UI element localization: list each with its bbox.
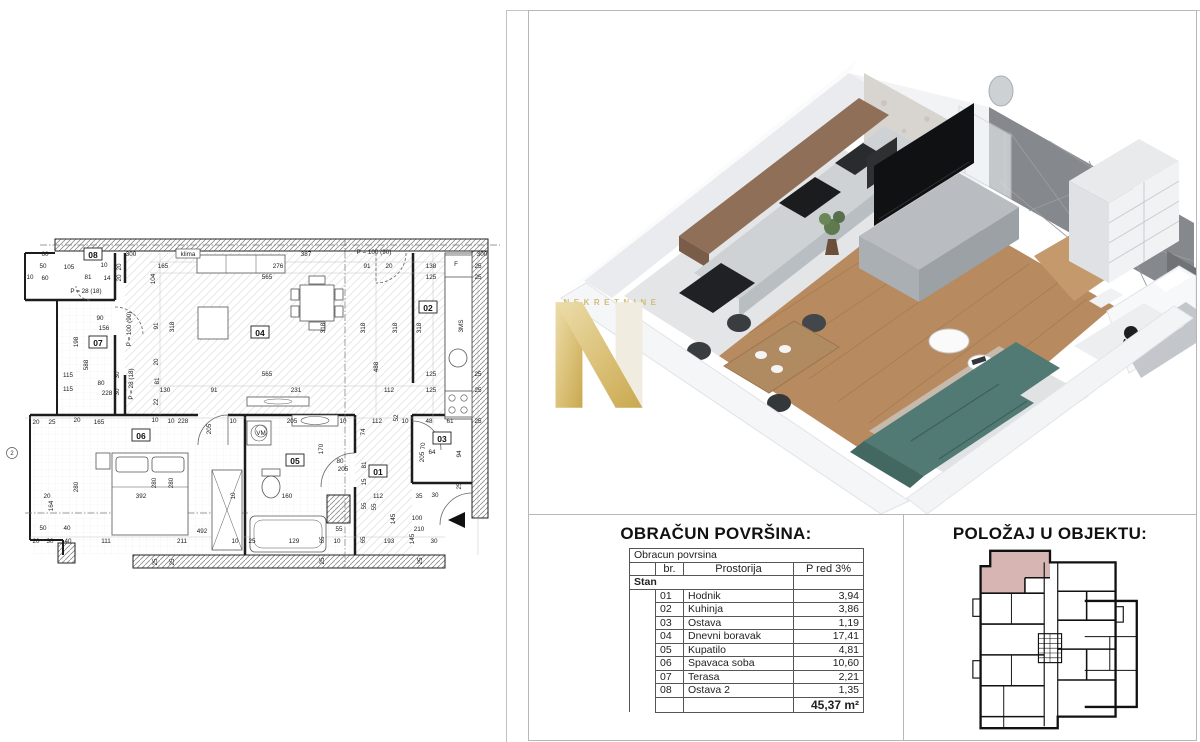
svg-text:14: 14 [103,275,111,282]
svg-text:104: 104 [150,273,157,284]
svg-text:25: 25 [48,419,56,426]
svg-text:64: 64 [428,449,436,456]
building-position-plan [950,545,1150,733]
svg-text:205: 205 [338,466,349,473]
svg-text:125: 125 [426,274,437,281]
table-row: 08Ostava 21,35 [630,684,864,698]
svg-text:08: 08 [88,250,98,260]
kitchen-fixtures [445,253,472,419]
svg-text:30: 30 [431,492,439,499]
svg-text:25: 25 [152,558,159,566]
svg-text:100: 100 [412,515,423,522]
svg-text:10: 10 [229,418,237,425]
svg-text:318: 318 [416,322,423,333]
floorplan-2d-drawing: 2 [0,225,505,585]
svg-text:10: 10 [151,417,159,424]
svg-text:70: 70 [420,442,427,450]
svg-text:25: 25 [474,387,482,394]
svg-text:74: 74 [360,428,367,436]
svg-text:04: 04 [255,328,265,338]
svg-text:25: 25 [417,557,424,565]
svg-text:20: 20 [43,493,51,500]
svg-text:P = 28 (18): P = 28 (18) [70,288,101,295]
svg-text:318: 318 [360,322,367,333]
svg-text:40: 40 [64,538,72,545]
round-mirror [989,76,1013,106]
svg-text:112: 112 [384,387,395,394]
svg-text:30: 30 [46,538,54,545]
svg-text:193: 193 [384,538,395,545]
agency-logo-n [547,296,651,414]
svg-text:90: 90 [96,315,104,322]
position-section: POLOŽAJ U OBJEKTU: [903,515,1196,740]
svg-text:318: 318 [169,321,176,332]
table-row: 07Terasa2,21 [630,670,864,684]
svg-text:52: 52 [393,414,400,422]
svg-text:565: 565 [262,274,273,281]
svg-text:55: 55 [371,503,378,511]
svg-text:20: 20 [385,263,393,270]
svg-text:228: 228 [102,390,113,397]
panel-divider-line [506,10,507,742]
area-table-title: OBRAČUN POVRŠINA: [529,524,903,544]
svg-text:06: 06 [136,431,146,441]
svg-text:55: 55 [335,526,343,533]
area-table: Obracun povrsina br. Prostorija P red 3%… [629,548,864,713]
svg-text:10: 10 [167,418,175,425]
entrance-arrow [448,512,465,528]
svg-text:115: 115 [63,372,74,379]
render-3d-view: NEKRETNINE [529,11,1196,514]
table-row: 04Dnevni boravak17,41 [630,630,864,644]
svg-text:81: 81 [361,461,368,469]
svg-text:488: 488 [373,361,380,372]
svg-text:318: 318 [392,322,399,333]
svg-text:10: 10 [230,492,237,500]
svg-text:138: 138 [426,263,437,270]
svg-text:30: 30 [430,538,438,545]
table-row: 01Hodnik3,94 [630,589,864,603]
svg-text:10: 10 [100,262,108,269]
svg-text:60: 60 [41,275,49,282]
col-area: P red 3% [794,562,864,576]
svg-text:387: 387 [301,251,312,258]
svg-text:07: 07 [93,338,103,348]
agency-watermark: NEKRETNINE [547,296,677,307]
svg-text:91: 91 [153,322,160,330]
svg-text:48: 48 [425,418,433,425]
svg-text:300: 300 [477,251,488,258]
svg-text:20: 20 [153,358,160,366]
svg-text:165: 165 [94,419,105,426]
svg-text:05: 05 [290,456,300,466]
svg-text:129: 129 [289,538,300,545]
svg-text:50: 50 [39,525,47,532]
svg-text:61: 61 [446,418,454,425]
render-3d-illustration [529,11,1196,514]
svg-text:81: 81 [154,377,161,385]
svg-text:165: 165 [158,263,169,270]
svg-text:10: 10 [26,274,34,281]
svg-text:170: 170 [318,443,325,454]
svg-text:3MS: 3MS [458,320,465,333]
svg-text:40: 40 [63,525,71,532]
svg-text:65: 65 [360,536,367,544]
svg-text:111: 111 [101,538,111,545]
svg-text:115: 115 [63,386,74,393]
svg-text:280: 280 [151,477,158,488]
svg-text:55: 55 [361,502,368,510]
table-row: 06Spavaca soba10,60 [630,657,864,671]
svg-text:10: 10 [339,418,347,425]
svg-text:VM: VM [256,430,265,437]
svg-text:280: 280 [73,481,80,492]
svg-text:F: F [454,261,458,268]
svg-text:35: 35 [415,493,423,500]
svg-text:492: 492 [197,528,208,535]
svg-text:25: 25 [319,557,326,565]
table-row: 02Kuhinja3,86 [630,603,864,617]
svg-text:03: 03 [437,434,447,444]
svg-text:231: 231 [291,387,302,394]
svg-text:2: 2 [10,451,14,457]
svg-text:210: 210 [414,526,425,533]
svg-text:50: 50 [39,263,47,270]
col-br: br. [656,562,684,576]
svg-text:01: 01 [373,467,383,477]
position-title: POLOŽAJ U OBJEKTU: [904,524,1196,544]
svg-text:228: 228 [178,418,189,425]
svg-text:94: 94 [456,450,463,458]
svg-text:145: 145 [409,533,416,544]
svg-text:276: 276 [273,263,284,270]
svg-text:20: 20 [73,417,81,424]
svg-text:20: 20 [116,263,123,271]
svg-text:25: 25 [474,418,482,425]
area-table-subtitle: Obracun povrsina [630,549,864,563]
svg-text:25: 25 [456,482,463,490]
svg-text:81: 81 [84,274,92,281]
svg-text:30: 30 [114,371,121,379]
svg-text:164: 164 [48,500,55,511]
svg-text:125: 125 [426,387,437,394]
svg-text:20: 20 [32,538,40,545]
group-label: Stan [630,576,794,590]
total-area: 45,37 m² [794,697,864,712]
svg-text:80: 80 [336,458,344,465]
svg-text:318: 318 [320,322,327,333]
svg-text:205: 205 [419,451,426,462]
svg-text:65: 65 [319,536,326,544]
svg-text:P = 100 (90): P = 100 (90) [357,249,392,256]
area-table-rows: 01Hodnik3,9402Kuhinja3,8603Ostava1,1904D… [630,589,864,697]
area-table-section: OBRAČUN POVRŠINA: Obracun povrsina br. P… [529,515,903,740]
svg-text:25: 25 [474,371,482,378]
table-row: 05Kupatilo4,81 [630,643,864,657]
svg-text:25: 25 [248,538,256,545]
svg-text:160: 160 [282,493,293,500]
svg-text:P = 100 (90): P = 100 (90) [126,312,133,347]
svg-text:02: 02 [423,303,433,313]
svg-text:20: 20 [116,274,123,282]
table-row: 03Ostava1,19 [630,616,864,630]
svg-text:91: 91 [210,387,218,394]
svg-text:25: 25 [169,558,176,566]
svg-text:565: 565 [262,371,273,378]
svg-text:25: 25 [474,274,482,281]
svg-text:10: 10 [231,538,239,545]
svg-text:112: 112 [373,493,384,500]
svg-text:280: 280 [168,477,175,488]
svg-text:25: 25 [474,263,482,270]
svg-text:125: 125 [426,371,437,378]
svg-text:60: 60 [41,251,49,258]
svg-text:10: 10 [333,538,341,545]
svg-text:145: 145 [390,513,397,524]
real-estate-listing-image: 2 [0,0,1200,742]
svg-text:198: 198 [73,336,80,347]
floorplan-2d-panel: 2 [0,10,506,742]
svg-text:22: 22 [153,398,160,406]
col-room: Prostorija [684,562,794,576]
terrace-floor [57,300,115,415]
svg-text:10: 10 [401,418,409,425]
svg-text:156: 156 [99,325,110,332]
right-panel: NEKRETNINE OBRAČUN POVRŠINA: Obracun pov… [528,10,1197,741]
svg-text:205: 205 [206,423,213,434]
svg-text:20: 20 [32,419,40,426]
svg-text:105: 105 [64,264,75,271]
svg-text:91: 91 [363,263,371,270]
svg-text:P = 28 (18): P = 28 (18) [128,368,135,399]
svg-text:130: 130 [160,387,171,394]
axis-marker: 2 [7,448,18,459]
svg-text:klima: klima [181,251,196,258]
svg-text:15: 15 [361,478,368,486]
svg-text:80: 80 [97,380,105,387]
svg-text:211: 211 [177,538,188,545]
svg-text:300: 300 [126,251,137,258]
svg-text:392: 392 [136,493,147,500]
svg-text:30: 30 [114,388,121,396]
svg-text:112: 112 [372,418,383,425]
svg-text:205: 205 [287,418,298,425]
svg-text:588: 588 [83,359,90,370]
